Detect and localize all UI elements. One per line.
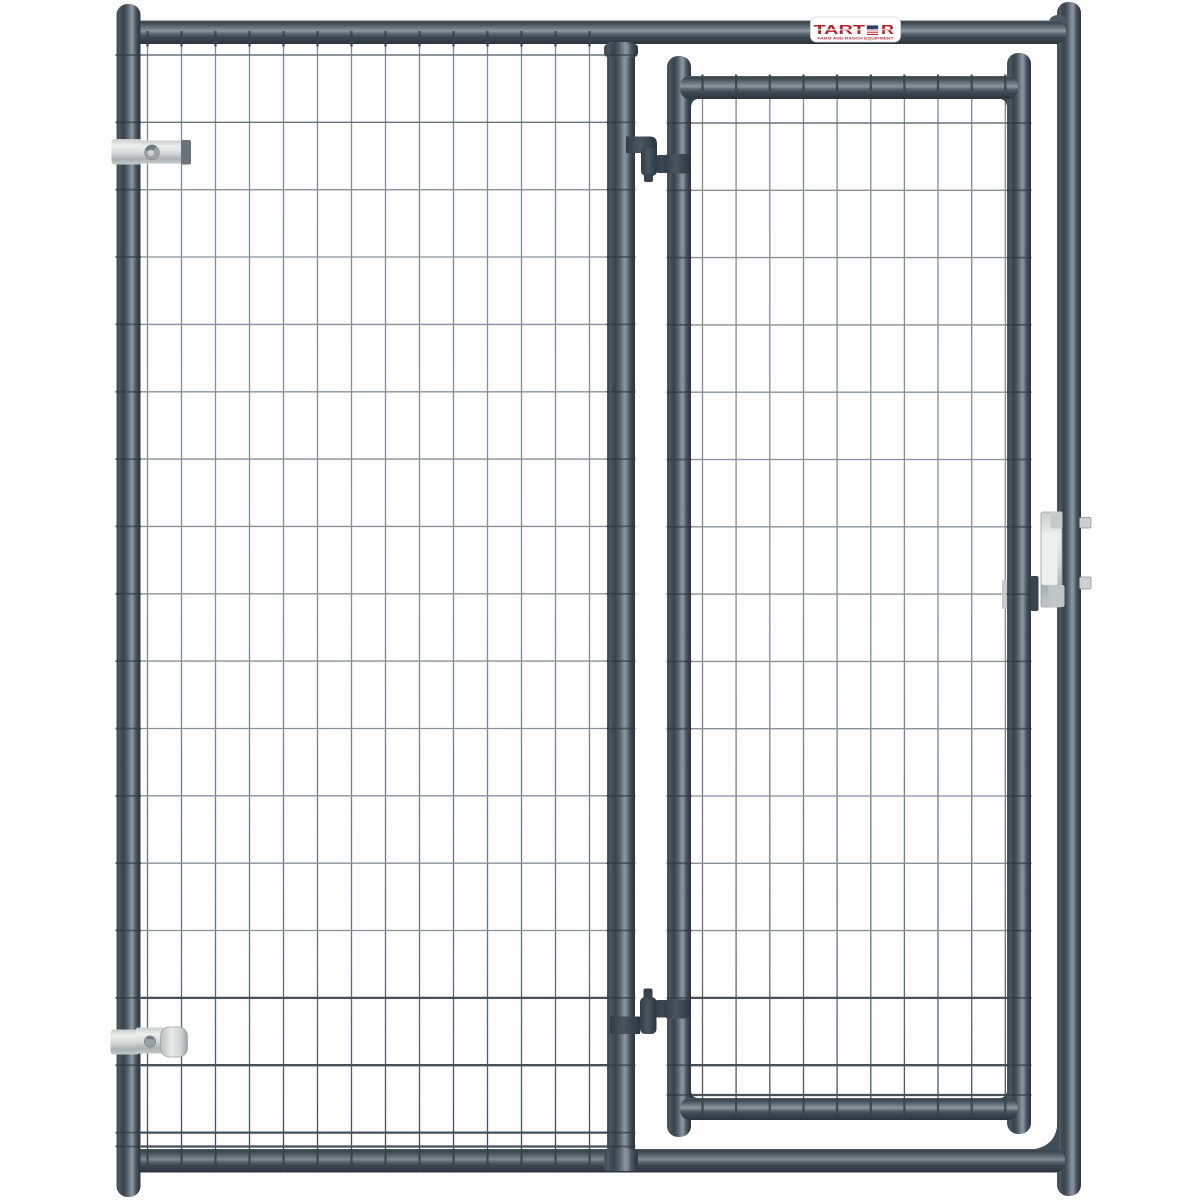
- svg-text:FARM AND RANCH EQUIPMENT: FARM AND RANCH EQUIPMENT: [818, 36, 895, 40]
